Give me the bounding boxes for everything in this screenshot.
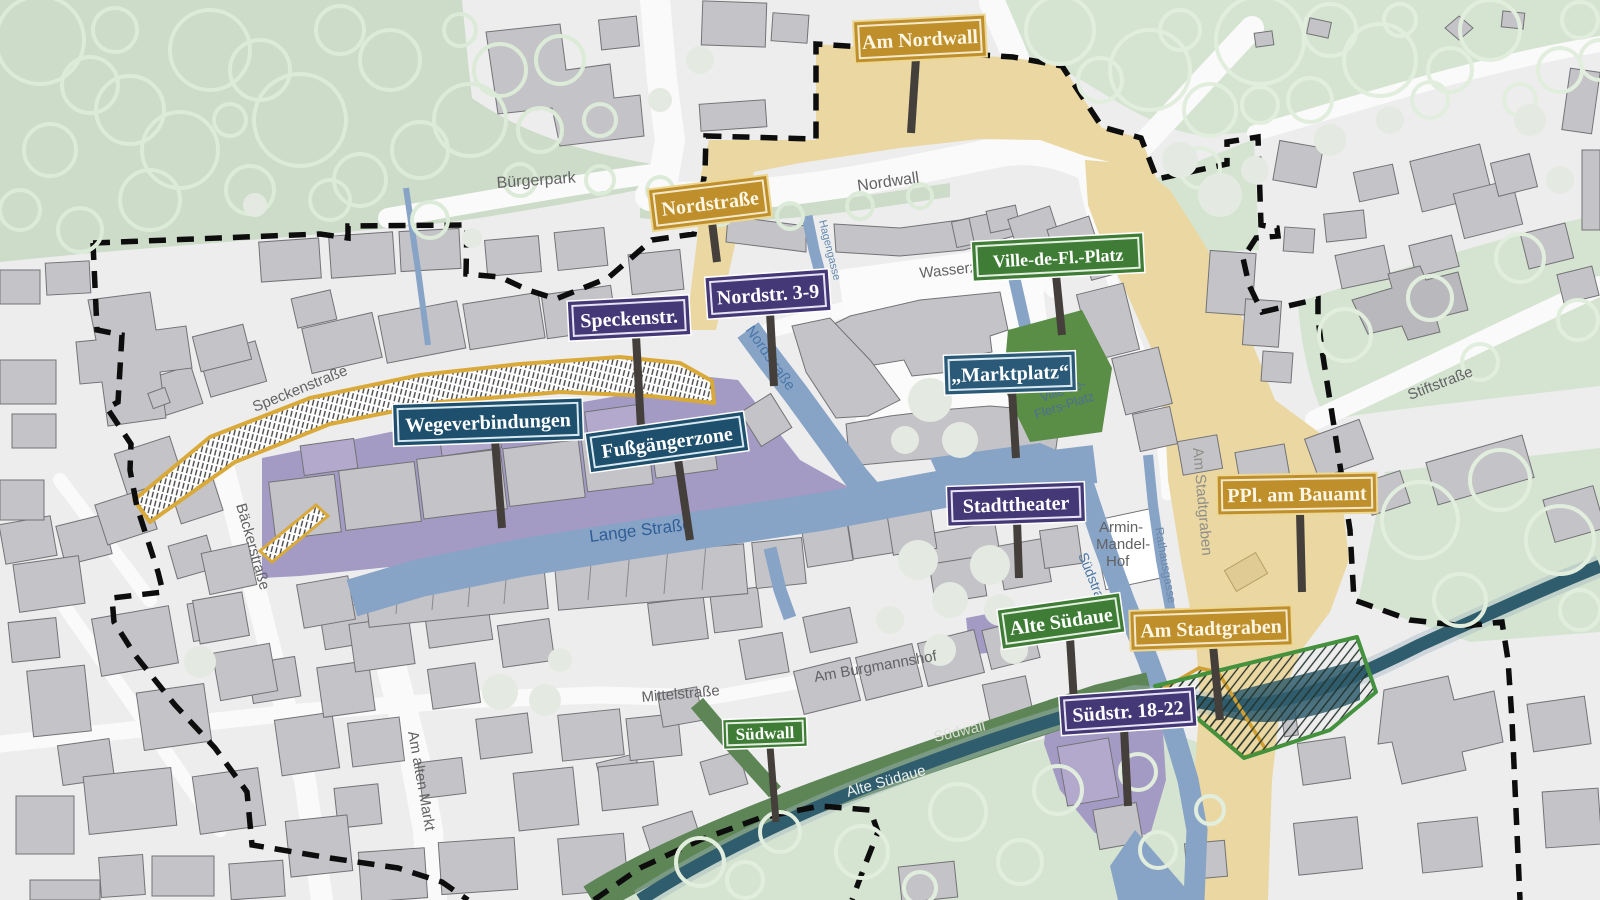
svg-text:Hof: Hof xyxy=(1106,553,1130,570)
svg-text:„Marktplatz“: „Marktplatz“ xyxy=(951,361,1069,387)
svg-text:Mandel-: Mandel- xyxy=(1096,536,1150,553)
svg-text:Armin-: Armin- xyxy=(1099,519,1143,536)
svg-text:PPl. am Bauamt: PPl. am Bauamt xyxy=(1227,483,1367,507)
svg-text:Südwall: Südwall xyxy=(735,723,794,744)
svg-text:Stadttheater: Stadttheater xyxy=(962,492,1069,518)
